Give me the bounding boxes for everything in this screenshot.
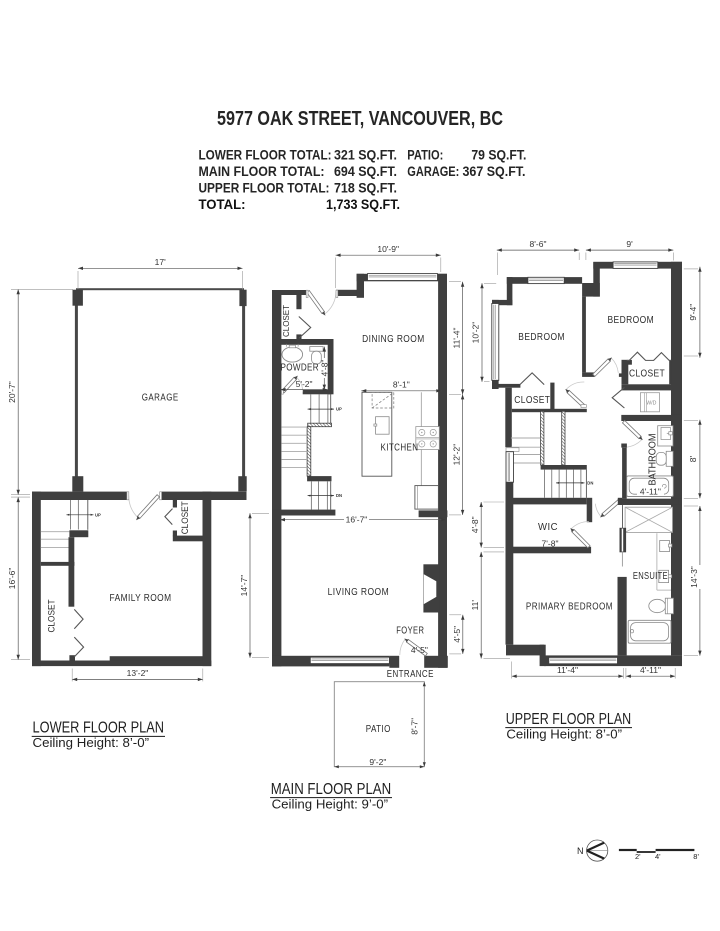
svg-text:UP: UP <box>336 407 342 412</box>
svg-text:UPPER FLOOR TOTAL:: UPPER FLOOR TOTAL: <box>199 181 330 196</box>
svg-text:8'-7": 8'-7" <box>410 718 420 735</box>
svg-text:8': 8' <box>688 456 698 463</box>
svg-text:9': 9' <box>626 239 633 249</box>
svg-text:4'-8": 4'-8" <box>470 516 480 533</box>
svg-text:8'-6": 8'-6" <box>530 239 547 249</box>
svg-text:BEDROOM: BEDROOM <box>518 332 565 343</box>
svg-text:10'-9": 10'-9" <box>377 244 399 254</box>
svg-text:367 SQ.FT.: 367 SQ.FT. <box>463 164 526 179</box>
svg-text:WIC: WIC <box>538 522 558 533</box>
svg-text:9'-2": 9'-2" <box>369 757 386 767</box>
svg-text:11'-4": 11'-4" <box>452 327 462 348</box>
svg-text:CLOSET: CLOSET <box>281 305 291 337</box>
svg-text:9'-4": 9'-4" <box>688 304 698 321</box>
svg-text:12'-2": 12'-2" <box>452 444 462 466</box>
svg-text:8': 8' <box>693 852 699 861</box>
svg-text:CLOSET: CLOSET <box>47 599 57 632</box>
svg-text:PATIO: PATIO <box>366 724 391 735</box>
svg-text:W/D: W/D <box>646 401 656 407</box>
svg-text:11'-4": 11'-4" <box>557 665 578 675</box>
svg-text:4': 4' <box>655 852 661 861</box>
svg-text:10'-2": 10'-2" <box>470 322 480 344</box>
svg-text:POWDER: POWDER <box>281 363 319 374</box>
svg-text:5977 OAK STREET, VANCOUVER, BC: 5977 OAK STREET, VANCOUVER, BC <box>217 107 503 130</box>
svg-text:N: N <box>577 846 584 856</box>
svg-text:Ceiling Height: 8’-0”: Ceiling Height: 8’-0” <box>33 735 150 750</box>
svg-text:17': 17' <box>155 257 166 267</box>
svg-text:321 SQ.FT.: 321 SQ.FT. <box>334 148 397 163</box>
svg-text:4'-8": 4'-8" <box>319 360 329 377</box>
svg-text:13'-2": 13'-2" <box>127 668 149 678</box>
svg-text:4'-11": 4'-11" <box>640 665 661 675</box>
svg-text:4'-5": 4'-5" <box>452 626 462 643</box>
svg-text:CLOSET: CLOSET <box>180 501 190 534</box>
svg-text:16'-6": 16'-6" <box>7 568 17 590</box>
svg-text:GARAGE: GARAGE <box>142 393 179 404</box>
svg-text:PATIO:: PATIO: <box>407 148 443 163</box>
svg-text:11': 11' <box>470 600 480 611</box>
svg-text:14'-7": 14'-7" <box>239 575 249 597</box>
svg-text:GARAGE:: GARAGE: <box>407 164 459 179</box>
svg-text:DINING ROOM: DINING ROOM <box>362 334 425 345</box>
svg-text:TOTAL:: TOTAL: <box>199 197 246 212</box>
svg-text:4'-5": 4'-5" <box>411 645 428 655</box>
svg-text:2': 2' <box>635 852 641 861</box>
svg-text:ENSUITE: ENSUITE <box>633 571 668 582</box>
svg-text:BEDROOM: BEDROOM <box>607 315 654 326</box>
svg-text:79 SQ.FT.: 79 SQ.FT. <box>471 148 526 163</box>
svg-text:694 SQ.FT.: 694 SQ.FT. <box>334 164 397 179</box>
svg-text:ENTRANCE: ENTRANCE <box>387 669 434 680</box>
svg-text:DN: DN <box>587 481 593 486</box>
svg-text:1,733 SQ.FT.: 1,733 SQ.FT. <box>326 197 400 212</box>
svg-text:Ceiling Height: 8’-0”: Ceiling Height: 8’-0” <box>506 727 622 742</box>
svg-text:UPPER FLOOR PLAN: UPPER FLOOR PLAN <box>506 711 631 728</box>
svg-text:718 SQ.FT.: 718 SQ.FT. <box>334 181 397 196</box>
svg-text:DN: DN <box>336 493 342 498</box>
svg-text:5'-2": 5'-2" <box>296 379 313 389</box>
svg-text:16'-7": 16'-7" <box>346 515 368 525</box>
svg-text:LOWER FLOOR TOTAL:: LOWER FLOOR TOTAL: <box>199 148 332 163</box>
svg-text:CLOSET: CLOSET <box>629 369 665 380</box>
svg-text:FAMILY ROOM: FAMILY ROOM <box>110 593 172 604</box>
svg-text:8'-1": 8'-1" <box>393 380 410 390</box>
svg-text:4'-11": 4'-11" <box>640 486 661 496</box>
svg-text:MAIN FLOOR TOTAL:: MAIN FLOOR TOTAL: <box>199 164 325 179</box>
svg-text:CLOSET: CLOSET <box>514 395 550 406</box>
svg-text:LIVING ROOM: LIVING ROOM <box>328 587 390 598</box>
svg-text:FOYER: FOYER <box>396 625 424 636</box>
svg-text:14'-3": 14'-3" <box>689 566 699 588</box>
svg-text:7'-8": 7'-8" <box>542 538 559 548</box>
svg-text:KITCHEN: KITCHEN <box>381 443 419 454</box>
svg-text:UP: UP <box>95 512 101 517</box>
svg-text:BATHROOM: BATHROOM <box>647 434 659 486</box>
svg-text:PRIMARY BEDROOM: PRIMARY BEDROOM <box>526 601 613 612</box>
svg-text:20'-7": 20'-7" <box>7 381 17 403</box>
svg-text:Ceiling Height: 9’-0”: Ceiling Height: 9’-0” <box>272 796 389 811</box>
